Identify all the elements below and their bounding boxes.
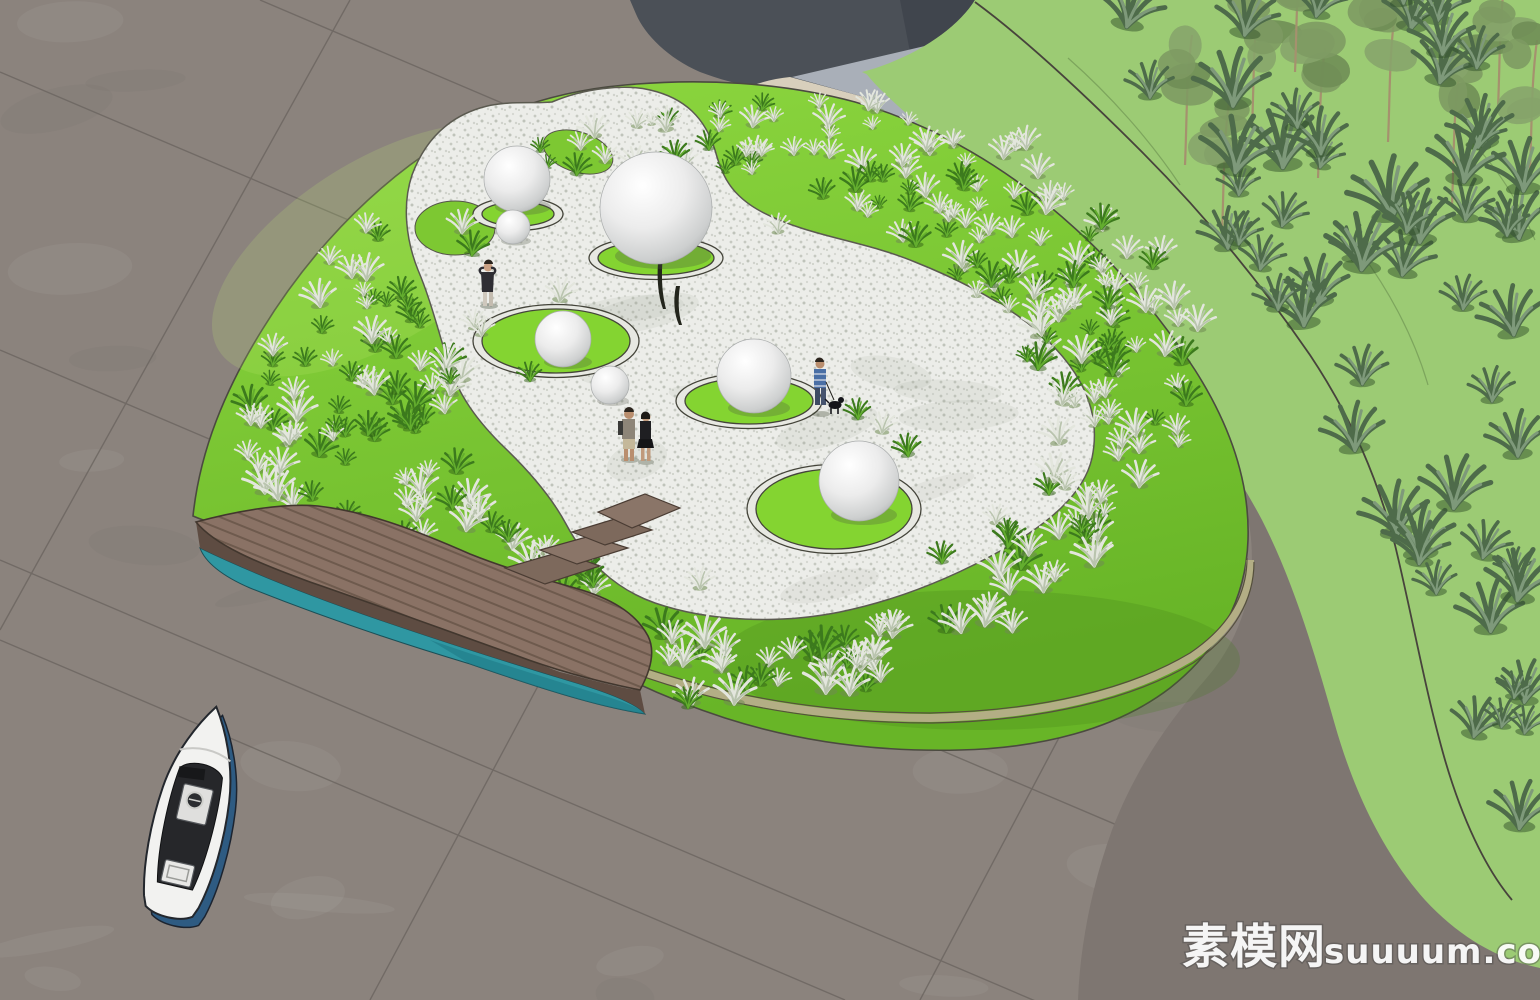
sphere xyxy=(496,210,530,244)
sphere xyxy=(484,146,550,212)
watermark-latin-text: suuuum.com xyxy=(1324,932,1540,972)
sphere xyxy=(600,152,712,264)
sphere xyxy=(819,441,899,521)
watermark-cjk-text: 素模网 xyxy=(1182,920,1326,975)
sphere xyxy=(591,366,629,404)
landscape-render: 素模网 suuuum.com xyxy=(0,0,1540,1000)
sphere xyxy=(717,339,791,413)
sphere xyxy=(535,311,591,367)
render-canvas: 素模网 suuuum.com xyxy=(0,0,1540,1000)
